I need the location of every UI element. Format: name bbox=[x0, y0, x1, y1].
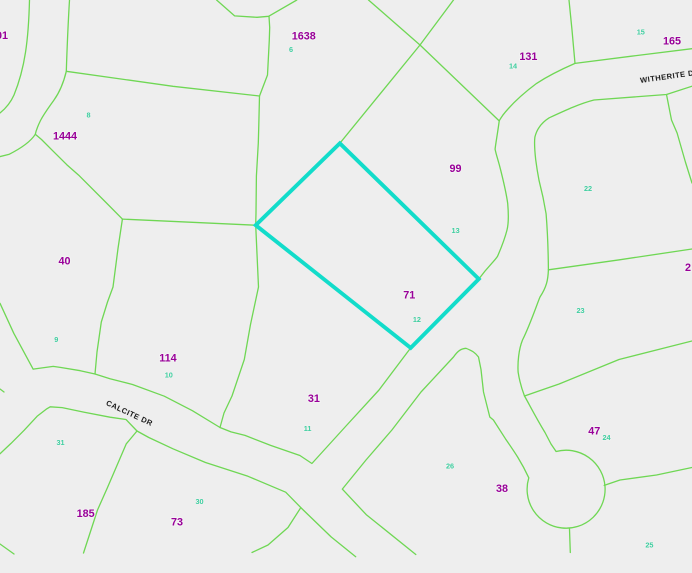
svg-text:9: 9 bbox=[54, 335, 58, 344]
svg-text:6: 6 bbox=[289, 45, 293, 54]
svg-text:40: 40 bbox=[58, 256, 70, 268]
svg-text:22: 22 bbox=[584, 184, 592, 193]
svg-text:1638: 1638 bbox=[292, 31, 316, 43]
svg-text:131: 131 bbox=[519, 51, 537, 63]
svg-text:47: 47 bbox=[588, 426, 600, 438]
svg-text:1444: 1444 bbox=[53, 131, 77, 143]
svg-text:2: 2 bbox=[685, 262, 691, 274]
svg-text:25: 25 bbox=[645, 541, 653, 550]
svg-text:31: 31 bbox=[308, 393, 320, 405]
svg-text:73: 73 bbox=[171, 517, 183, 529]
svg-text:01: 01 bbox=[0, 30, 8, 42]
svg-text:30: 30 bbox=[195, 497, 203, 506]
svg-text:12: 12 bbox=[413, 315, 421, 324]
svg-text:165: 165 bbox=[663, 36, 681, 48]
svg-text:14: 14 bbox=[509, 62, 518, 71]
svg-text:71: 71 bbox=[403, 290, 415, 302]
svg-text:8: 8 bbox=[86, 110, 90, 119]
svg-text:15: 15 bbox=[637, 28, 645, 37]
svg-text:11: 11 bbox=[304, 424, 312, 433]
svg-text:24: 24 bbox=[602, 433, 611, 442]
svg-text:23: 23 bbox=[576, 306, 584, 315]
svg-text:99: 99 bbox=[449, 163, 461, 175]
svg-text:185: 185 bbox=[77, 508, 95, 520]
svg-text:31: 31 bbox=[56, 438, 64, 447]
svg-text:13: 13 bbox=[452, 226, 460, 235]
svg-text:26: 26 bbox=[446, 462, 454, 471]
svg-text:10: 10 bbox=[165, 370, 173, 379]
svg-text:38: 38 bbox=[496, 483, 508, 495]
svg-text:114: 114 bbox=[159, 353, 176, 365]
